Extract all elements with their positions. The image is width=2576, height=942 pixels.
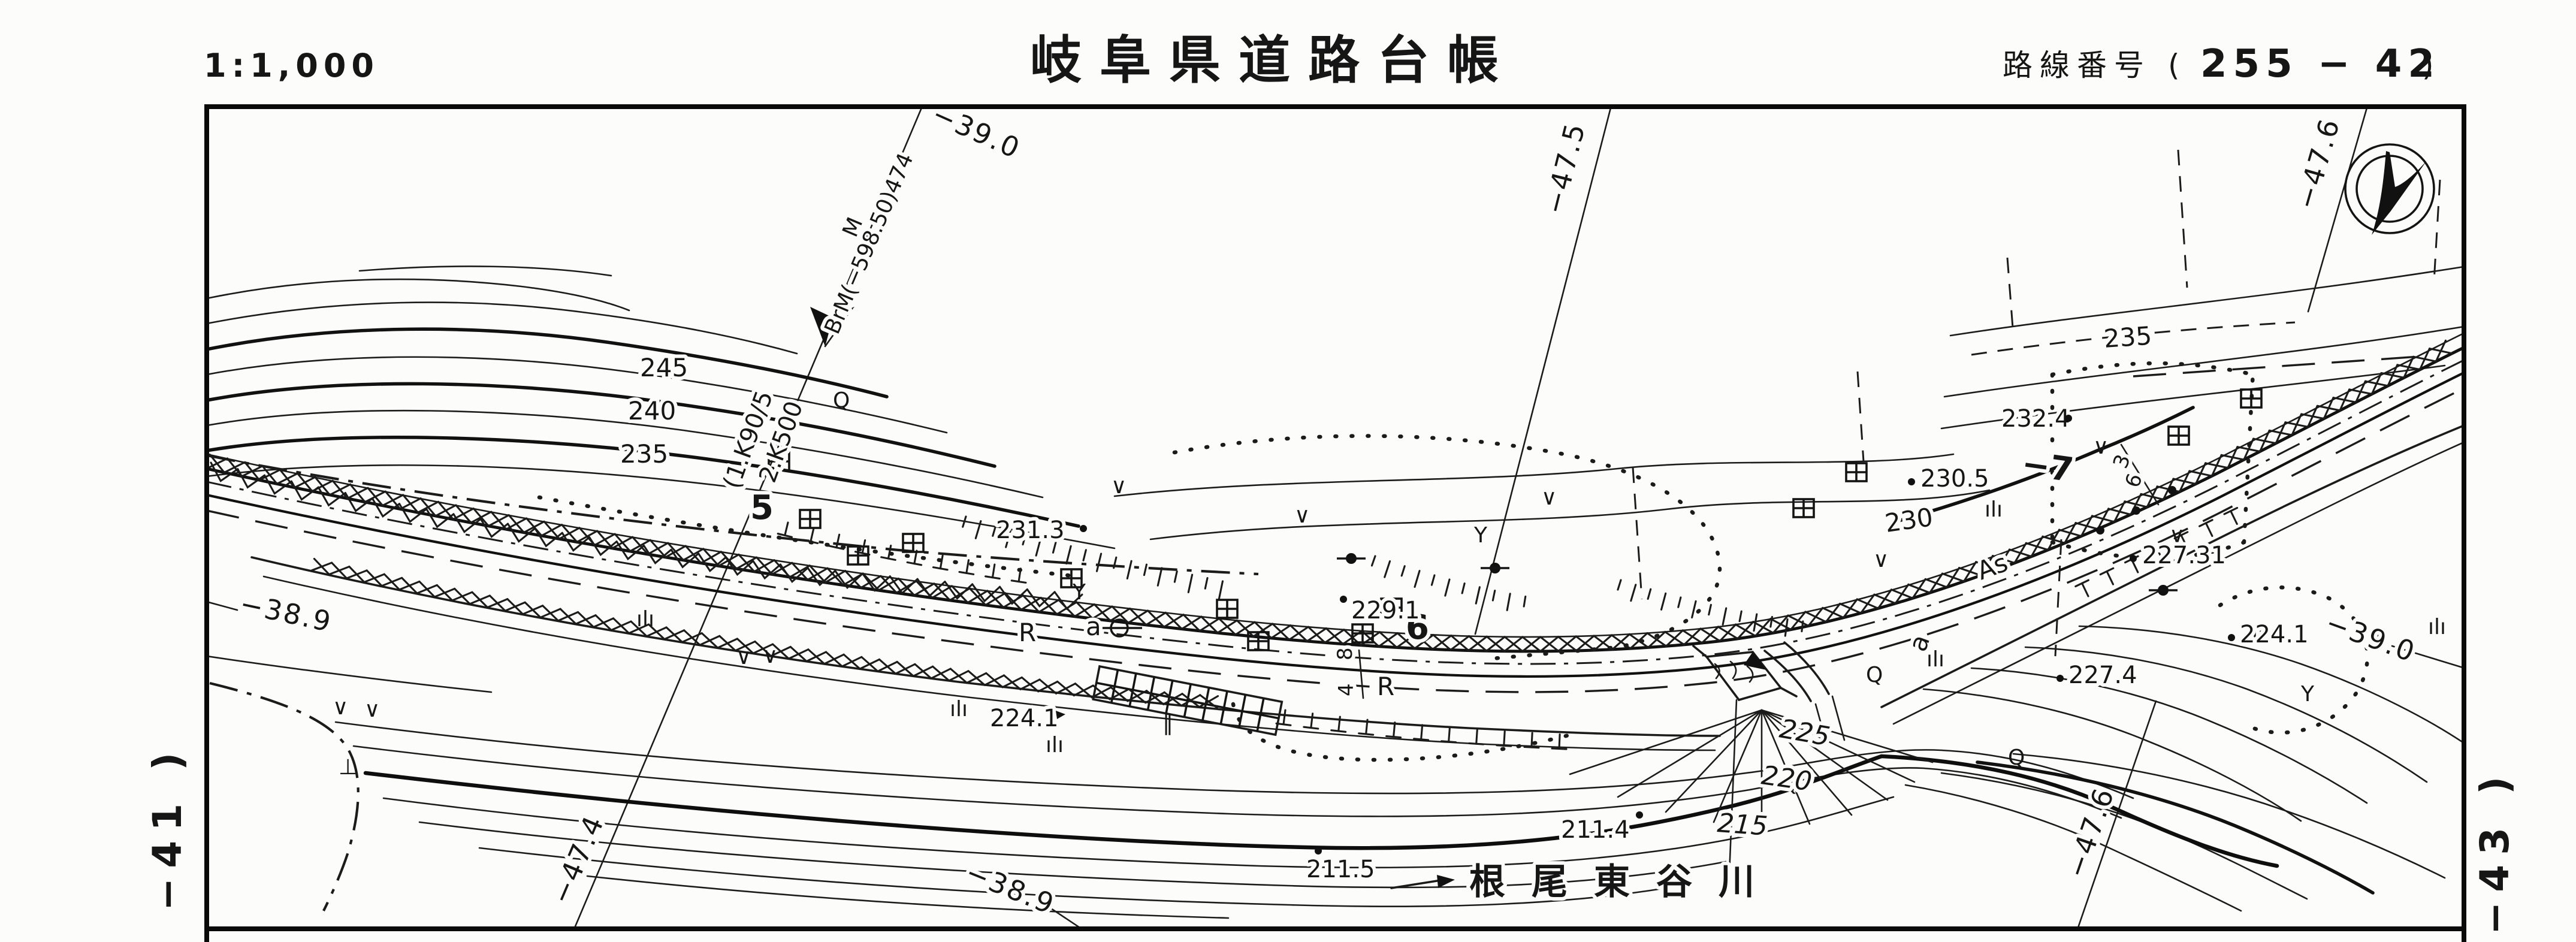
route-paren-open: ( xyxy=(2168,48,2187,83)
map-content: ∨ ∨ ∨ ∨ ∨ ∨ ∨ ∨ ∨ ∨ ∨ Y Y Y Q Q Q Q ılı … xyxy=(207,98,2464,928)
width-dim-3: 3 xyxy=(2109,451,2136,472)
grid-label-left-y: −38.9 xyxy=(237,587,336,638)
tree-q-symbol: Q xyxy=(833,388,850,413)
map-canvas: 1:1,000 岐阜県道路台帳 路線番号 ( 255 − 42 ) −41 ) … xyxy=(0,0,2576,942)
benchmark-text: BrM(−598.50)474 xyxy=(820,150,919,338)
orchard-y-symbol: Y xyxy=(1473,523,1488,548)
road-letter-a1: a xyxy=(1086,612,1101,641)
road-side-dashed-line xyxy=(207,388,2464,692)
wall-tees-1-marks xyxy=(778,523,1026,582)
road-letter-r1: R xyxy=(1019,618,1036,647)
grass-symbol: ılı xyxy=(636,607,654,632)
spot-211-4: 211.4 xyxy=(1561,816,1630,844)
contour-235: 235 xyxy=(620,439,668,469)
field-v-symbol: ∨ xyxy=(1541,485,1557,510)
width-dim-6: 6 xyxy=(2121,470,2148,491)
road-hatch-guide-marks xyxy=(207,340,2452,651)
field-v-symbol: ∨ xyxy=(333,695,348,720)
contour-220: 220 xyxy=(1759,760,1813,797)
tree-q-symbol: Q xyxy=(1866,663,1883,687)
grid-label-bottom-x1: −47.4 xyxy=(544,810,611,909)
paddy-symbol: ‖ xyxy=(1162,711,1173,735)
pavement-type-label: As xyxy=(1973,548,2012,585)
grid-label-bottom-y: −38.9 xyxy=(961,856,1060,920)
spot-224-1-left: 224.1 xyxy=(990,705,1059,732)
sheet-header: 1:1,000 岐阜県道路台帳 路線番号 ( 255 − 42 ) xyxy=(204,31,2441,90)
contour-240: 240 xyxy=(628,396,676,425)
width-dim-4: 4 xyxy=(1334,683,1358,696)
north-arrow xyxy=(2345,144,2434,235)
field-v-symbol: ∨ xyxy=(1111,474,1127,499)
field-v-symbol: ∨ xyxy=(736,645,751,669)
contour-lines-valley xyxy=(336,626,2464,918)
route-number-label: 路線番号 xyxy=(2003,48,2151,83)
spot-231-3: 231.3 xyxy=(996,517,1065,544)
field-v-symbol: ∨ xyxy=(1294,503,1310,528)
grid-label-right-y: −39.0 xyxy=(2321,606,2420,669)
orchard-y-symbol: Y xyxy=(1072,580,1086,605)
road-letter-r2: R xyxy=(1377,672,1394,701)
grid-label-top-x1: −47.5 xyxy=(1538,119,1591,217)
check-dam xyxy=(1693,646,1796,700)
road-hatch-guide xyxy=(207,348,2464,651)
field-v-symbol: ∨ xyxy=(2093,434,2109,459)
road-upper-edge xyxy=(207,348,2464,651)
route-number-value: 255 − 42 xyxy=(2200,42,2441,86)
page-title: 岐阜県道路台帳 xyxy=(1030,31,1517,90)
adjacent-sheet-right-label: −43 ) xyxy=(2472,767,2518,935)
spot-227-4: 227.4 xyxy=(2068,662,2137,689)
spot-229-1: 229.1 xyxy=(1351,597,1420,624)
field-v-symbol: ∨ xyxy=(762,644,778,668)
contour-245: 245 xyxy=(640,353,688,382)
adjacent-sheet-left-label: −41 ) xyxy=(144,743,191,911)
road-ledger-sheet: 1:1,000 岐阜県道路台帳 路線番号 ( 255 − 42 ) −41 ) … xyxy=(0,0,2576,942)
gully-flow-lines xyxy=(1570,700,1932,874)
flow-arrow-icon xyxy=(1437,875,1455,888)
tree-q-symbol: Q xyxy=(2008,745,2025,770)
spot-224-1-right: 224.1 xyxy=(2240,621,2309,648)
grass-symbol: ılı xyxy=(2428,615,2446,639)
spot-232-4: 232.4 xyxy=(2001,405,2070,433)
contour-230: 230 xyxy=(1883,502,1935,538)
orchard-y-symbol: Y xyxy=(2300,682,2315,707)
field-v-symbol: ∨ xyxy=(364,698,380,722)
contour-215: 215 xyxy=(1716,808,1768,842)
grass-symbol: ılı xyxy=(1985,497,2003,522)
width-dim-8: 8 xyxy=(1333,647,1357,660)
slope-hachure-3 xyxy=(1621,580,1831,624)
tee-symbol: ⊥ xyxy=(339,755,357,780)
station-7: −7 xyxy=(2019,444,2076,490)
contour-235-right: 235 xyxy=(2103,321,2152,354)
road-hatch-top-line xyxy=(207,333,2464,637)
spot-211-5: 211.5 xyxy=(1306,856,1375,883)
grid-coordinate-labels: −39.0 −47.5 −47.6 −38.9 −39.0 −47.4 −38.… xyxy=(237,98,2421,921)
river-name: 根尾東谷川 xyxy=(1469,861,1781,903)
station-5: 5 xyxy=(750,488,774,527)
slope-hachure-2 xyxy=(1375,556,1543,599)
spot-227-31: 227.31 xyxy=(2142,542,2226,569)
route-paren-close: ) xyxy=(2422,48,2441,83)
field-v-symbol: ∨ xyxy=(1873,548,1889,572)
contour-225: 225 xyxy=(1777,714,1832,753)
spot-230-5: 230.5 xyxy=(1920,465,1989,493)
scale-label: 1:1,000 xyxy=(204,47,379,84)
grass-symbol: ılı xyxy=(950,697,968,721)
grid-label-top-x2: −47.6 xyxy=(2290,114,2347,213)
grass-symbol: ılı xyxy=(1046,733,1064,757)
road-letter-a2: a xyxy=(1902,630,1935,655)
river-label: 根尾東谷川 xyxy=(1391,861,1781,903)
